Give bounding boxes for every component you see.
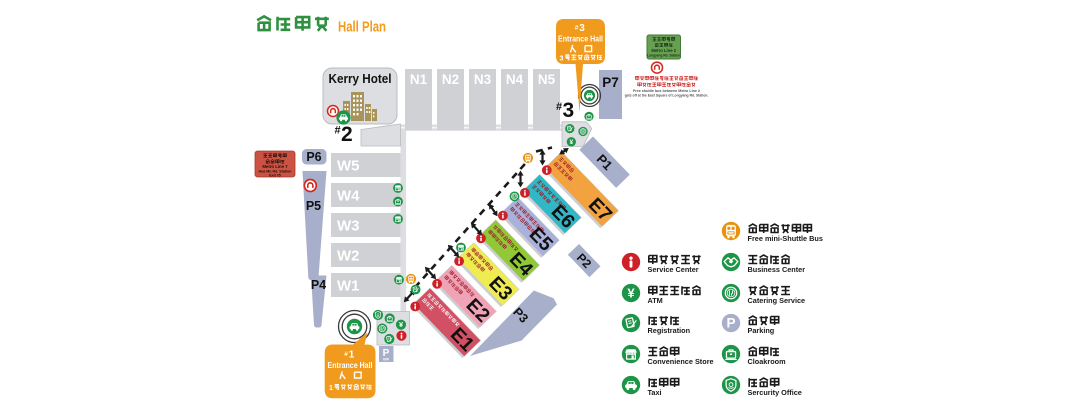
svg-text:Exit #5: Exit #5: [269, 173, 281, 177]
svg-text:Convenience Store: Convenience Store: [648, 357, 714, 366]
svg-text:1: 1: [329, 385, 333, 392]
svg-text:N1: N1: [410, 72, 428, 87]
svg-text:Business Center: Business Center: [748, 265, 806, 274]
svg-text:P6: P6: [306, 150, 321, 164]
svg-text:Metro Line 2: Metro Line 2: [651, 48, 676, 53]
svg-text:Entrance Hall: Entrance Hall: [558, 34, 603, 44]
svg-text:P5: P5: [306, 199, 321, 213]
svg-text:3: 3: [560, 56, 564, 63]
svg-text:VIP: VIP: [383, 357, 390, 362]
svg-text:Free mini-Shuttle Bus: Free mini-Shuttle Bus: [748, 234, 823, 243]
svg-text:#: #: [335, 125, 341, 137]
svg-text:3: 3: [579, 23, 585, 34]
svg-text:Hall Plan: Hall Plan: [338, 19, 386, 36]
svg-text:N4: N4: [506, 72, 524, 87]
svg-text:W2: W2: [337, 248, 360, 265]
svg-text:#: #: [556, 101, 562, 113]
svg-text:Parking: Parking: [748, 326, 775, 335]
svg-text:Kerry Hotel: Kerry Hotel: [329, 72, 392, 86]
svg-text:Service Center: Service Center: [648, 265, 699, 274]
svg-text:P7: P7: [602, 75, 619, 90]
svg-text:Entrance Hall: Entrance Hall: [328, 360, 373, 370]
svg-text:#: #: [344, 351, 348, 358]
svg-text:3: 3: [563, 99, 575, 122]
svg-text:Catering Service: Catering Service: [748, 296, 806, 305]
svg-text:W4: W4: [337, 188, 360, 205]
svg-text:1: 1: [349, 350, 355, 361]
svg-text:W5: W5: [337, 158, 360, 175]
svg-text:gets off at the East Square of: gets off at the East Square of Longyang …: [625, 93, 709, 97]
svg-text:#: #: [575, 25, 579, 32]
svg-text:N5: N5: [538, 72, 556, 87]
svg-text:Sercurity Office: Sercurity Office: [748, 388, 802, 397]
svg-text:N3: N3: [474, 72, 492, 87]
svg-text:Taxi: Taxi: [648, 388, 662, 397]
svg-text:N2: N2: [442, 72, 459, 87]
svg-text:W3: W3: [337, 218, 360, 235]
svg-text:Registration: Registration: [648, 326, 691, 335]
svg-text:Cloakroom: Cloakroom: [748, 357, 787, 366]
svg-text:2: 2: [341, 123, 353, 146]
svg-text:W1: W1: [337, 278, 360, 295]
svg-text:P4: P4: [311, 278, 326, 292]
svg-text:Metro Line 7: Metro Line 7: [262, 164, 288, 169]
svg-text:ATM: ATM: [648, 296, 663, 305]
svg-text:Longyang Rd. Station: Longyang Rd. Station: [647, 54, 680, 58]
